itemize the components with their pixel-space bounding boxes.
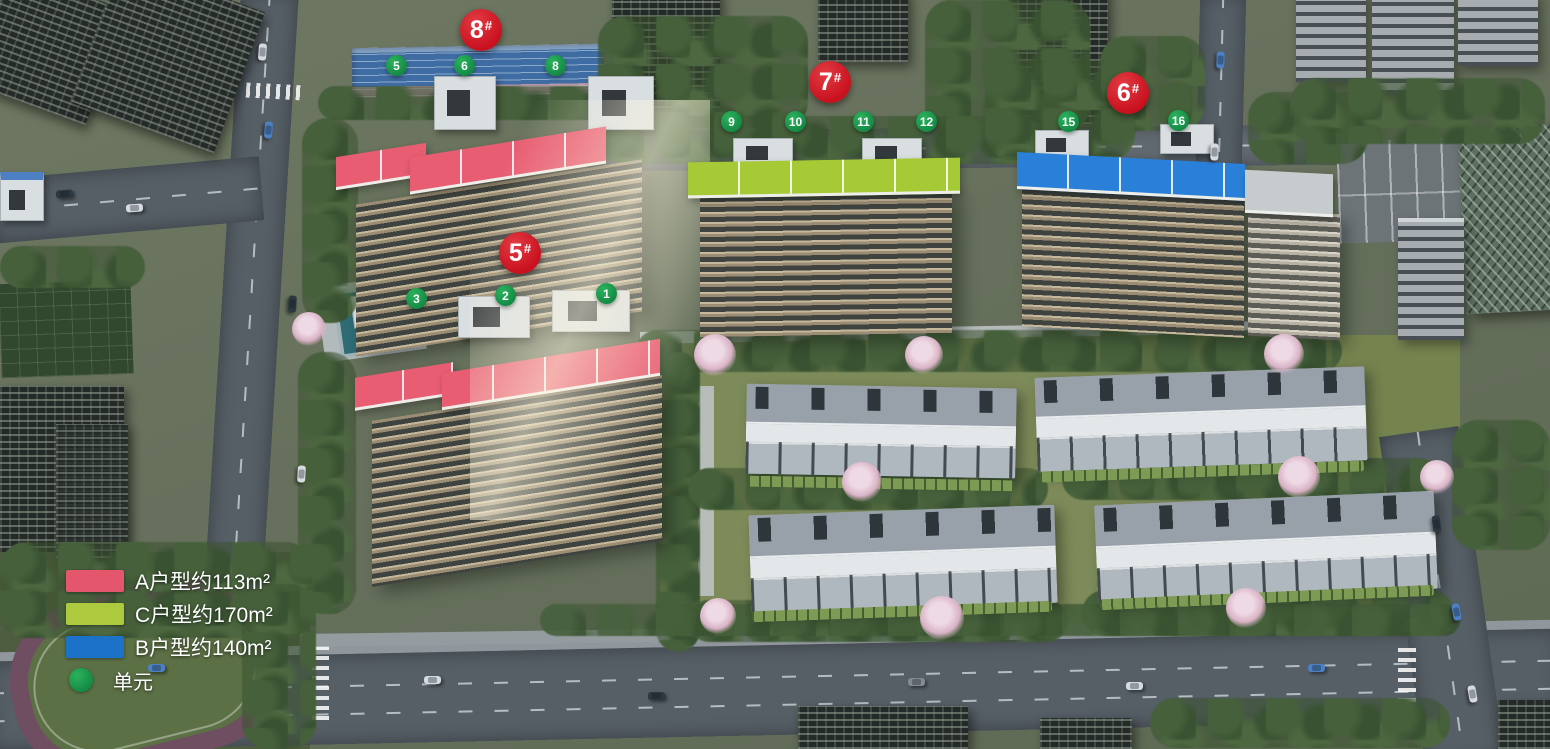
- tree-row: [0, 246, 145, 288]
- unit-marker-11[interactable]: 11: [853, 111, 874, 132]
- blossom-tree: [1226, 588, 1266, 628]
- car: [1216, 51, 1225, 68]
- city-building: [818, 0, 908, 62]
- city-building: [1296, 0, 1366, 82]
- tower-adjacent-body: [1248, 210, 1340, 341]
- rowhouse: [1034, 366, 1367, 471]
- blossom-tree: [920, 596, 964, 640]
- legend-row-type-c: C户型约170m²: [66, 603, 273, 625]
- legend-row-type-a: A户型约113m²: [66, 570, 273, 592]
- car: [288, 295, 297, 312]
- car: [1126, 682, 1143, 690]
- tree-cluster: [1452, 420, 1550, 550]
- unit-marker-15[interactable]: 15: [1058, 111, 1079, 132]
- car: [258, 43, 267, 61]
- unit-marker-9[interactable]: 9: [721, 111, 742, 132]
- unit-marker-5[interactable]: 5: [386, 55, 407, 76]
- blossom-tree: [700, 598, 736, 634]
- city-building: [1458, 0, 1538, 66]
- tree-row: [1290, 78, 1545, 144]
- city-building: [798, 706, 968, 749]
- building-badge-7[interactable]: 7#: [809, 61, 851, 103]
- site-plan-rendering: 8# 7# 6# 5# 5 6 8 9 10 11 12 15 16 3 2 1…: [0, 0, 1550, 749]
- car: [424, 676, 441, 684]
- legend-label-unit: 单元: [113, 666, 153, 695]
- car: [297, 465, 306, 482]
- badge-suffix: #: [834, 71, 841, 84]
- rowhouse: [748, 505, 1057, 614]
- tree-row: [1150, 698, 1450, 748]
- tower-7-body: [700, 190, 952, 337]
- blossom-tree: [292, 312, 326, 346]
- city-building: [1498, 700, 1550, 749]
- small-building: [0, 172, 44, 221]
- tower-adjacent-roof: [1245, 170, 1333, 218]
- tree-row: [598, 116, 1044, 164]
- legend-row-type-b: B户型约140m²: [66, 636, 273, 658]
- car: [1210, 143, 1219, 160]
- badge-number: 5: [509, 239, 523, 268]
- rowhouse: [745, 384, 1017, 479]
- legend: A户型约113m² C户型约170m² B户型约140m² 单元: [66, 570, 273, 702]
- legend-label-type-a: A户型约113m²: [135, 566, 270, 596]
- badge-number: 6: [1117, 79, 1131, 108]
- unit-marker-1[interactable]: 1: [596, 283, 617, 304]
- tower-6-body: [1022, 186, 1244, 338]
- car: [648, 692, 665, 700]
- rooftop-structure: [588, 76, 654, 130]
- sports-field: [0, 280, 134, 379]
- badge-number: 8: [470, 16, 484, 45]
- building-badge-6[interactable]: 6#: [1107, 72, 1149, 114]
- legend-unit-dot-icon: [69, 668, 93, 692]
- unit-marker-10[interactable]: 10: [785, 111, 806, 132]
- car: [126, 203, 144, 212]
- glass-tower: [1457, 124, 1550, 315]
- car: [264, 121, 273, 139]
- legend-row-unit: 单元: [66, 669, 273, 691]
- tower-7-roof: [688, 158, 960, 199]
- legend-swatch-type-c: [66, 603, 124, 625]
- building-badge-5[interactable]: 5#: [499, 232, 541, 274]
- unit-marker-12[interactable]: 12: [916, 111, 937, 132]
- city-building: [1040, 718, 1132, 749]
- blossom-tree: [1278, 456, 1320, 498]
- unit-marker-2[interactable]: 2: [495, 285, 516, 306]
- blossom-tree: [842, 462, 882, 502]
- crosswalk: [246, 82, 305, 100]
- unit-marker-6[interactable]: 6: [454, 55, 475, 76]
- unit-marker-16[interactable]: 16: [1168, 110, 1189, 131]
- city-building: [1398, 218, 1464, 340]
- tree-row: [302, 118, 358, 323]
- city-building: [56, 424, 128, 558]
- unit-marker-3[interactable]: 3: [406, 288, 427, 309]
- blossom-tree: [1264, 334, 1304, 374]
- building-badge-8[interactable]: 8#: [460, 9, 502, 51]
- tower-5-body: [372, 375, 662, 587]
- tower-5-roof-west: [355, 362, 453, 411]
- legend-label-type-c: C户型约170m²: [135, 599, 273, 629]
- car: [1308, 664, 1325, 672]
- rowhouse-terrace: [745, 441, 1016, 478]
- rooftop-structure: [552, 290, 630, 332]
- blossom-tree: [694, 334, 736, 376]
- blossom-tree: [905, 336, 943, 374]
- legend-swatch-type-b: [66, 636, 124, 658]
- rooftop-structure: [1160, 124, 1214, 154]
- legend-label-type-b: B户型约140m²: [135, 632, 272, 662]
- rooftop-structure: [458, 296, 530, 338]
- legend-swatch-type-a: [66, 570, 124, 592]
- badge-suffix: #: [524, 242, 531, 255]
- badge-suffix: #: [485, 19, 492, 32]
- unit-marker-8[interactable]: 8: [545, 55, 566, 76]
- blossom-tree: [1420, 460, 1454, 494]
- badge-number: 7: [819, 68, 833, 97]
- rowhouse-roof: [746, 384, 1017, 429]
- car: [56, 189, 74, 198]
- car: [908, 678, 925, 686]
- badge-suffix: #: [1132, 82, 1139, 95]
- rooftop-structure: [434, 76, 496, 130]
